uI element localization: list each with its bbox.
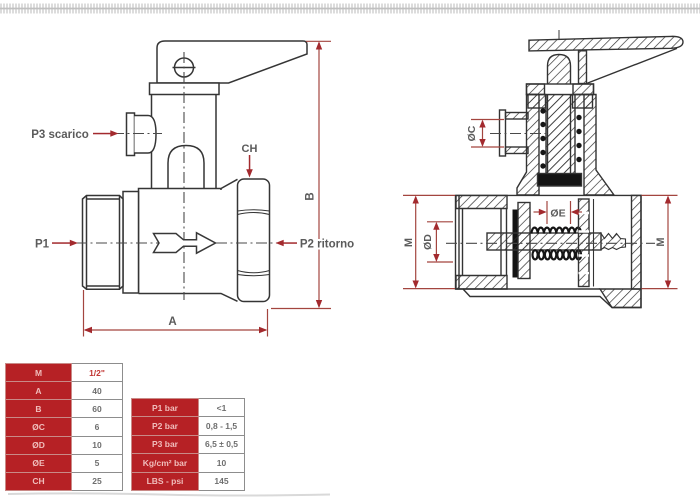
svg-text:M: M [655,237,667,246]
svg-text:M: M [403,238,415,247]
svg-text:A: A [168,316,176,328]
svg-text:P2 ritorno: P2 ritorno [300,239,354,251]
svg-text:CH: CH [242,143,258,155]
svg-text:P1: P1 [35,239,50,251]
svg-text:B: B [305,192,317,200]
svg-text:P3 scarico: P3 scarico [31,129,89,141]
svg-text:ØD: ØD [422,234,434,250]
svg-text:ØE: ØE [550,208,565,220]
svg-text:ØC: ØC [466,125,478,141]
